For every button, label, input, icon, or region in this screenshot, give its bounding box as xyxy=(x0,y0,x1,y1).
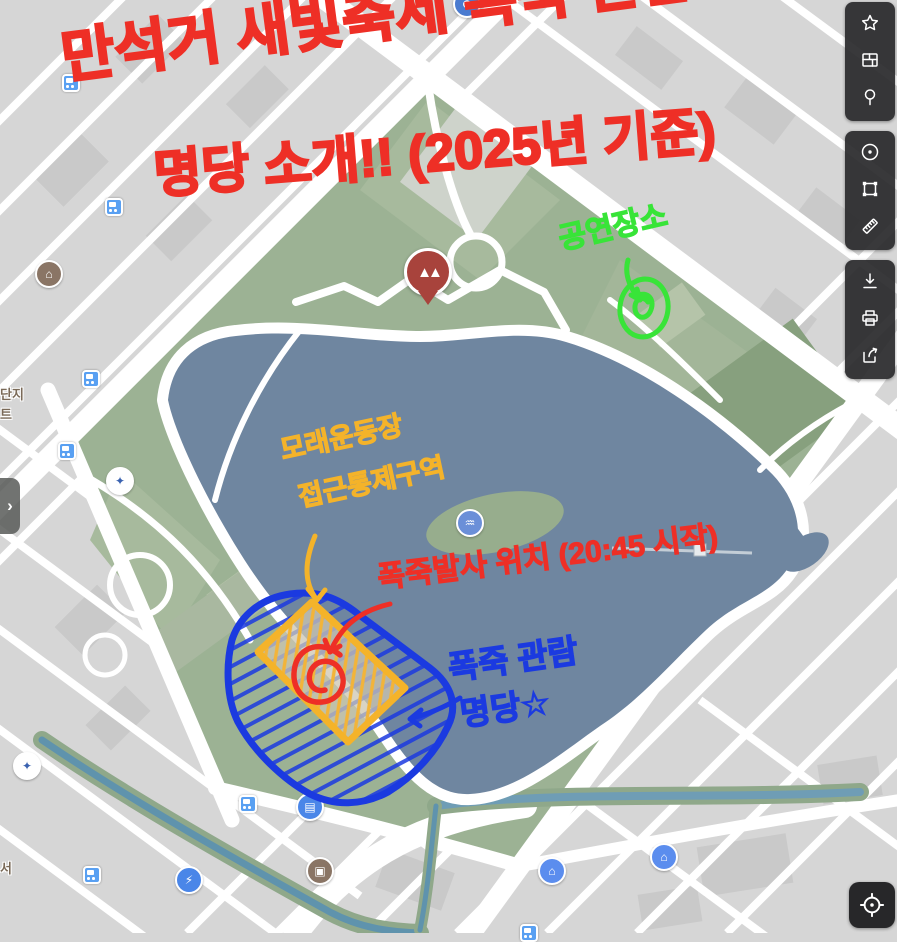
share-icon xyxy=(860,345,880,365)
sidebar-group-3 xyxy=(845,260,895,379)
sidebar-button-streetview[interactable] xyxy=(845,80,895,117)
sidebar-group-1 xyxy=(845,2,895,121)
cadastral-icon xyxy=(860,50,880,70)
map-tools-sidebar xyxy=(845,2,895,379)
sidebar-button-cadastral[interactable] xyxy=(845,43,895,80)
sidebar-button-star[interactable] xyxy=(845,6,895,43)
map-canvas[interactable] xyxy=(0,0,897,933)
map-app: { "annotations": { "title_line1": "만석거 새… xyxy=(0,0,897,933)
sidebar-button-print[interactable] xyxy=(845,301,895,338)
sidebar-button-area[interactable] xyxy=(845,172,895,209)
area-icon xyxy=(860,179,880,199)
sidebar-button-share[interactable] xyxy=(845,338,895,375)
streetview-icon xyxy=(860,87,880,107)
current-location-button[interactable] xyxy=(849,882,895,928)
download-icon xyxy=(860,271,880,291)
sidebar-group-2 xyxy=(845,131,895,250)
crosshair-icon xyxy=(855,888,889,922)
sidebar-button-download[interactable] xyxy=(845,264,895,301)
radius-icon xyxy=(860,142,880,162)
chevron-right-icon: › xyxy=(7,496,13,516)
sidebar-button-ruler[interactable] xyxy=(845,209,895,246)
panel-expand-toggle[interactable]: › xyxy=(0,478,20,534)
sidebar-button-radius[interactable] xyxy=(845,135,895,172)
print-icon xyxy=(860,308,880,328)
ruler-icon xyxy=(860,216,880,236)
star-icon xyxy=(860,13,880,33)
